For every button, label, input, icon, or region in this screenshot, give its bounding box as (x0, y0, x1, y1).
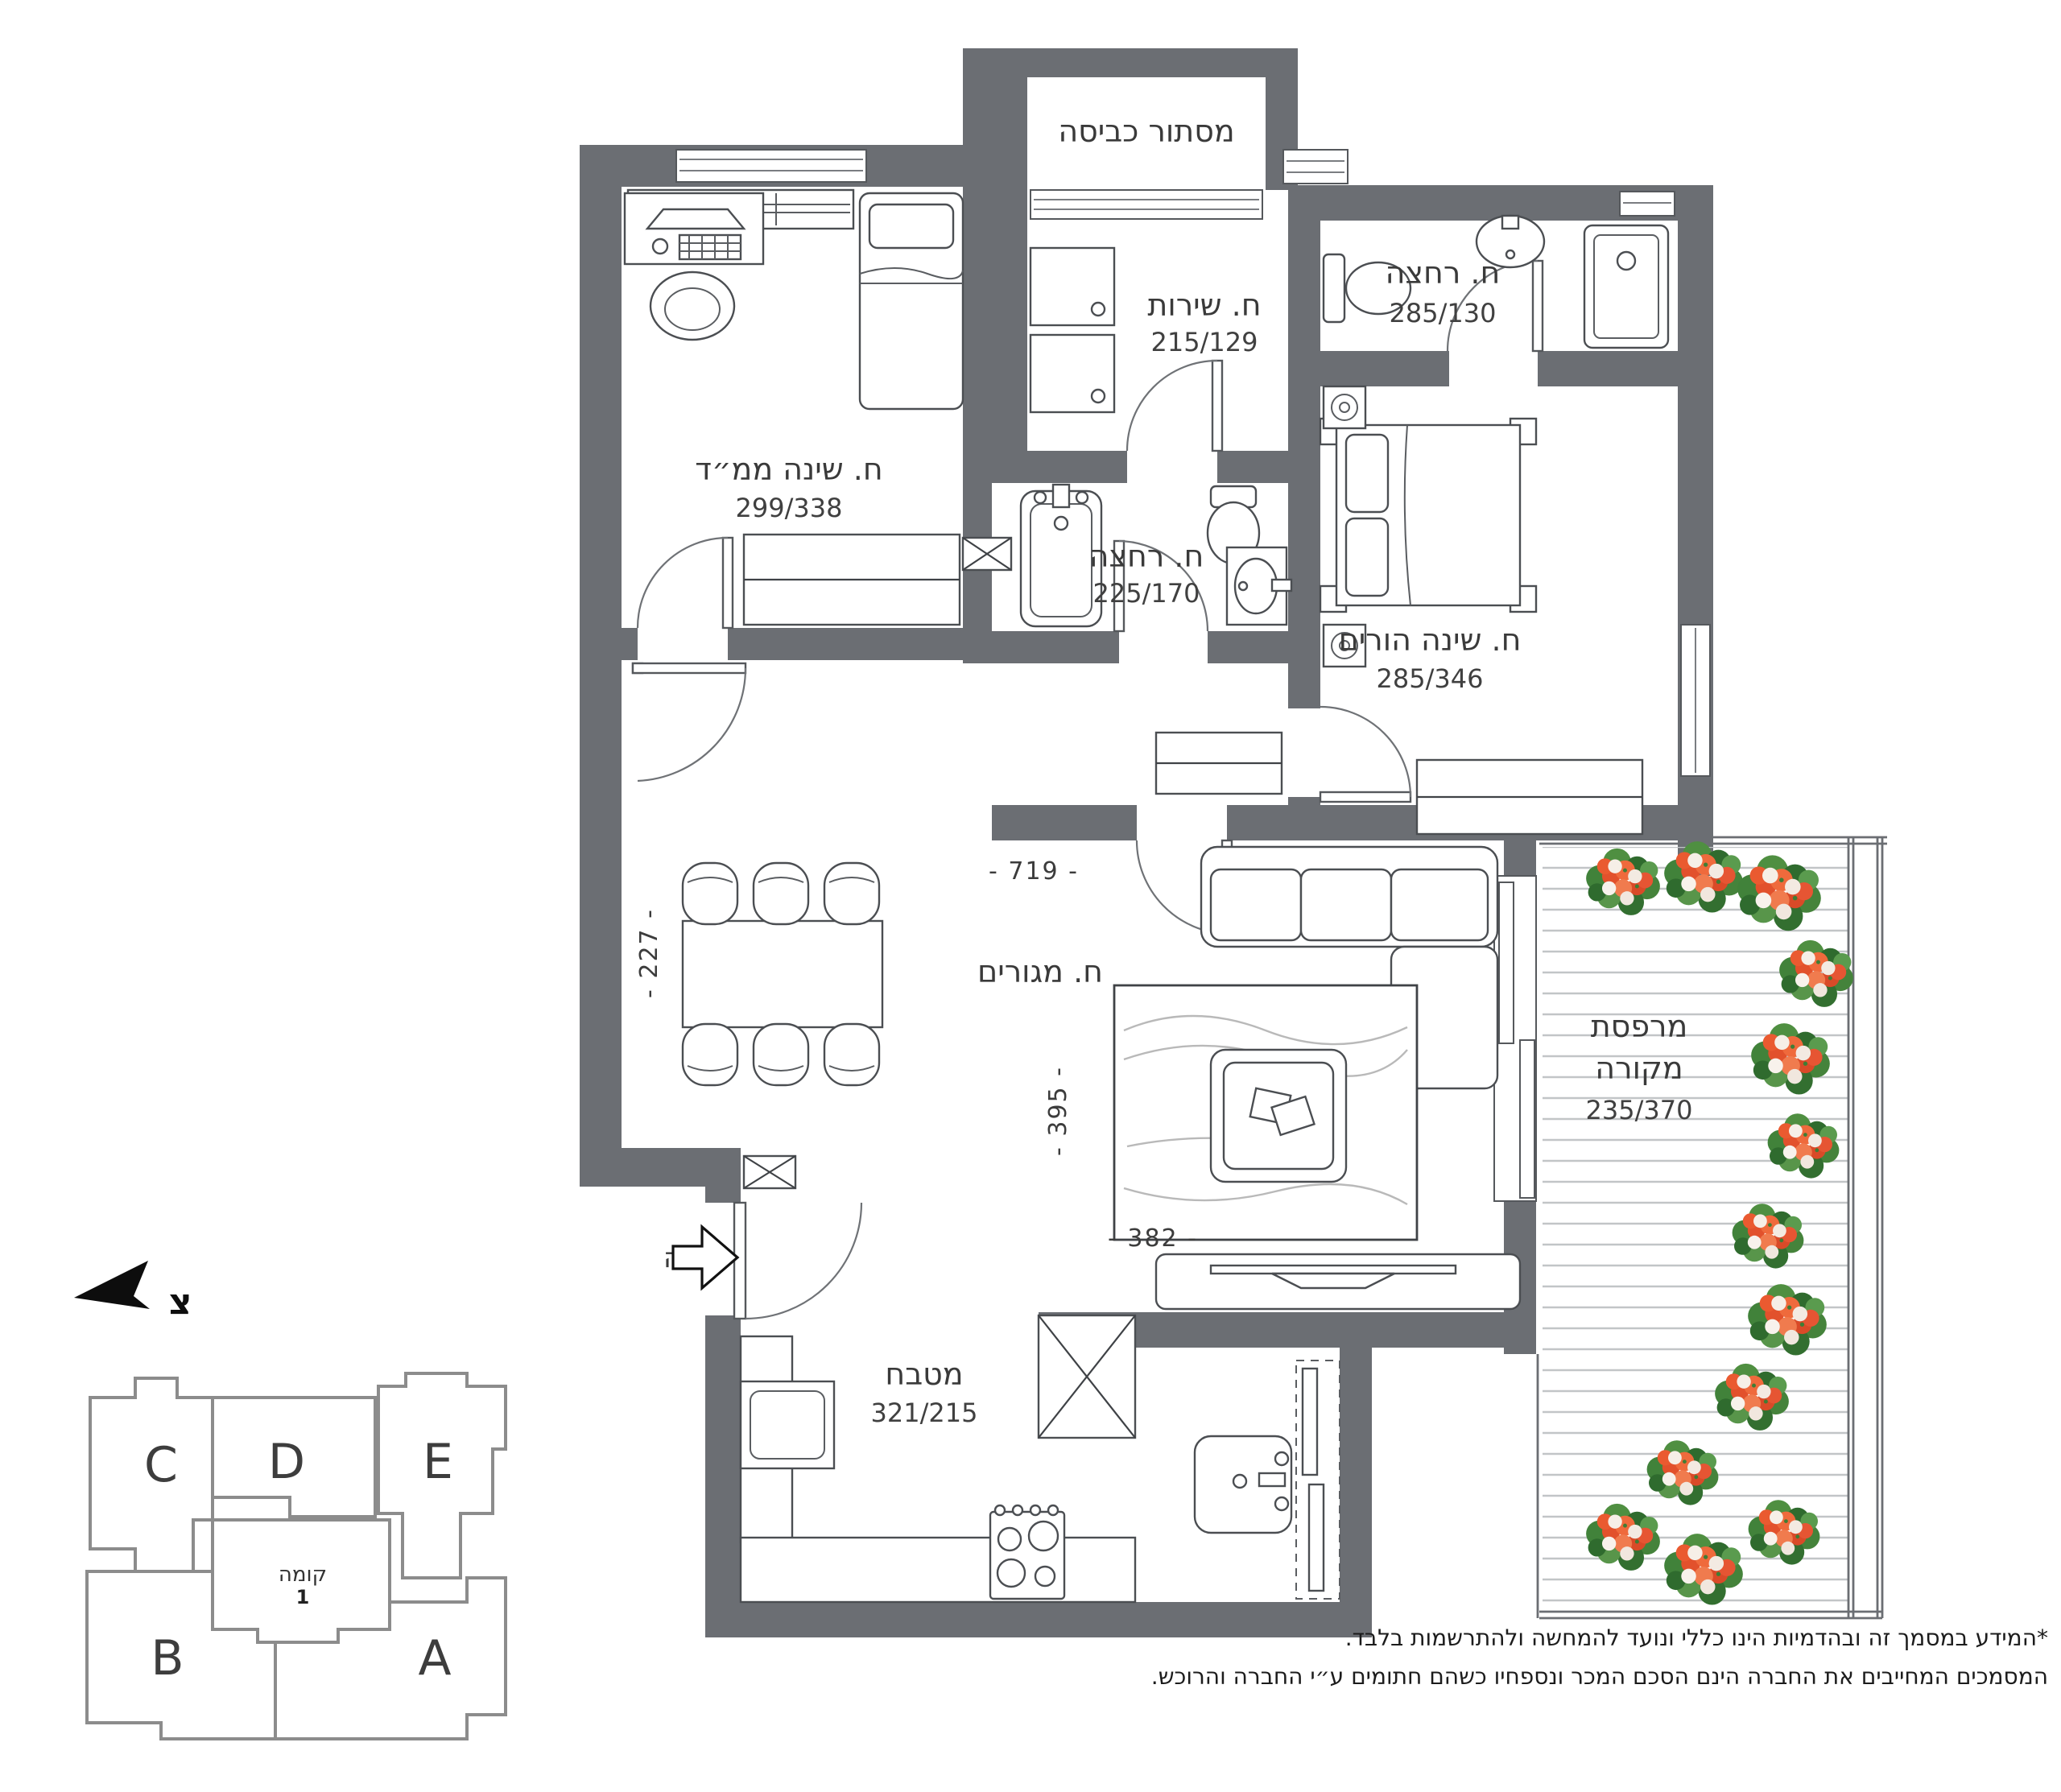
bath-top-dims: 285/130 (1390, 298, 1497, 328)
corridor (1156, 733, 1282, 794)
balcony-label-2: מקורה (1595, 1051, 1683, 1086)
north-arrow: צ (74, 1261, 192, 1323)
washer (1030, 248, 1114, 325)
bath-top-label: ח. רחצה (1386, 255, 1501, 291)
sink (1227, 547, 1291, 625)
bathtub (1584, 225, 1668, 348)
entry-duct (744, 1156, 795, 1188)
desk-chair (651, 272, 734, 340)
tv-console (1156, 1254, 1520, 1309)
dryer (1030, 335, 1114, 412)
master-door (1320, 707, 1410, 802)
wc-label: ח. שירות (1147, 287, 1261, 323)
living-room (683, 847, 1520, 1309)
keyplan-letter-b: B (151, 1630, 184, 1687)
bath-mid-label: ח. רחצה (1089, 539, 1204, 574)
wardrobe (744, 535, 960, 625)
kitchen-label: מטבח (885, 1356, 963, 1392)
mamad-bedroom (625, 190, 963, 625)
mamad-label: ח. שינה ממ״ד (695, 452, 882, 487)
coffee-table (1211, 1050, 1346, 1182)
mamad-window (676, 150, 866, 182)
bath-duct (963, 538, 1011, 570)
north-arrow-icon (74, 1261, 150, 1309)
balcony-dims: 235/370 (1586, 1095, 1693, 1125)
dim-227: - 227 - (635, 908, 663, 998)
disclaimer-line-1: *המידע במסמך זה ובהדמיות הינו כללי ונועד… (1345, 1625, 2048, 1651)
laundry-label: מסתור כביסה (1058, 114, 1234, 149)
pantry (1296, 1361, 1340, 1599)
master-window (1681, 625, 1710, 776)
keyplan-letter-e: E (423, 1434, 453, 1490)
key-plan: C D E B A קומה 1 (87, 1373, 506, 1739)
hall-door (633, 663, 746, 781)
dim-382: - 382 - (1108, 1224, 1198, 1253)
keyplan-letter-d: D (268, 1434, 305, 1490)
core-niche-window (1283, 150, 1348, 184)
entrance-door (734, 1203, 861, 1319)
living-label: ח. מגורים (977, 954, 1103, 989)
entrance-arrow-icon (673, 1227, 737, 1288)
master-dims: 285/346 (1377, 663, 1484, 694)
kitchen-shaft (1039, 1315, 1135, 1438)
mamad-dims: 299/338 (736, 493, 843, 523)
single-bed (860, 193, 963, 409)
stove (990, 1505, 1064, 1599)
keyplan-floor-label: קומה (279, 1563, 327, 1587)
bath-mid-dims: 225/170 (1093, 578, 1200, 609)
master-bedroom (1320, 386, 1642, 834)
keyplan-letter-a: A (418, 1630, 451, 1687)
master-label: ח. שינה הורים (1339, 622, 1522, 658)
closet (1417, 760, 1642, 834)
balcony-sliding-door (1494, 876, 1536, 1201)
floor-plan-drawing: כניסה מסתור כביסה ח. שירות 215/129 ח. רח… (0, 0, 2061, 1792)
wc-dims: 215/129 (1151, 327, 1258, 357)
laundry-window (1030, 190, 1262, 219)
balcony-label-1: מרפסת (1591, 1009, 1688, 1044)
wc-door (1127, 361, 1222, 451)
dim-395: - 395 - (1044, 1066, 1072, 1156)
kitchen-sink (1195, 1436, 1291, 1533)
keyplan-floor-number: 1 (296, 1586, 310, 1608)
hall-closet (1156, 733, 1282, 794)
desk (625, 193, 763, 264)
oven (741, 1381, 834, 1468)
keyplan-letter-c: C (144, 1437, 178, 1493)
disclaimer-line-2: המסמכים המחייבים את החברה הינם הסכם המכר… (1151, 1663, 2048, 1690)
dining-table (683, 921, 882, 1027)
nightstand (1324, 386, 1365, 428)
double-bed (1320, 419, 1536, 612)
dim-719: - 719 - (989, 857, 1079, 886)
north-letter: צ (169, 1282, 192, 1323)
mamad-door (638, 538, 733, 628)
wc-room (1030, 248, 1114, 412)
entrance: כניסה (663, 1227, 737, 1288)
bath-top-window (1620, 192, 1675, 216)
kitchen-dims: 321/215 (871, 1398, 978, 1428)
floor-plan-page: כניסה מסתור כביסה ח. שירות 215/129 ח. רח… (0, 0, 2061, 1792)
balcony (1538, 837, 1887, 1618)
